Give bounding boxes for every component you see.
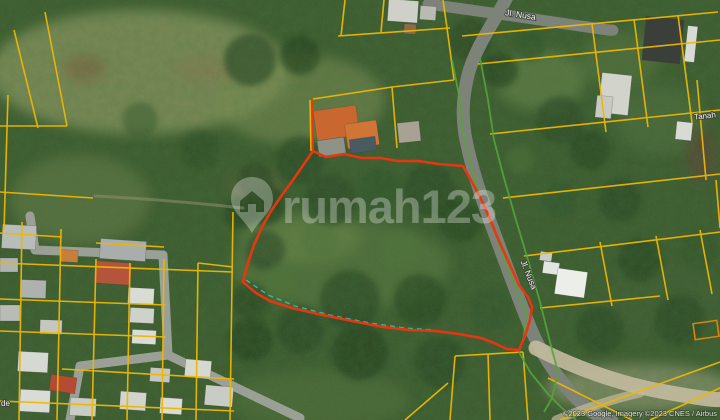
watermark-brand-text: rumah123 [282,180,496,233]
map-attribution: ©2023 Google, Imagery ©2023 CNES / Airbu… [563,409,717,418]
property-boundary-spur [312,100,313,151]
street-label-fragment: de [1,399,10,408]
satellite-map-canvas[interactable]: Jl. Nusa Jl. Nusa Tanah de rumah123 ©202… [0,0,720,420]
satellite-map[interactable]: Jl. Nusa Jl. Nusa Tanah de rumah123 ©202… [0,0,720,420]
